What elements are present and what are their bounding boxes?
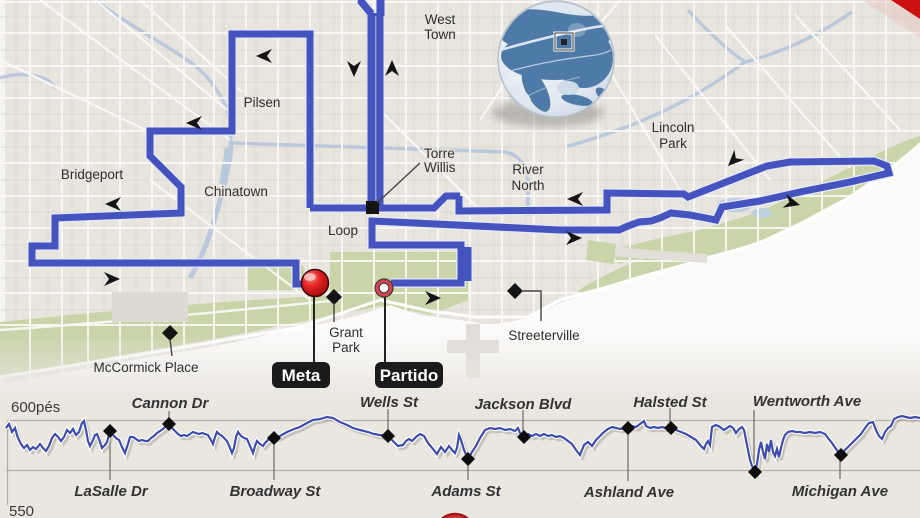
- svg-text:Park: Park: [332, 340, 360, 355]
- svg-text:Michigan Ave: Michigan Ave: [792, 483, 888, 500]
- svg-text:Town: Town: [424, 27, 456, 42]
- svg-text:Adams St: Adams St: [430, 483, 501, 500]
- svg-text:Loop: Loop: [328, 223, 358, 238]
- svg-text:Broadway St: Broadway St: [230, 483, 322, 500]
- svg-text:North: North: [511, 178, 544, 193]
- svg-text:550: 550: [9, 503, 34, 518]
- svg-text:Streeterville: Streeterville: [508, 328, 579, 343]
- svg-text:Cannon Dr: Cannon Dr: [132, 395, 210, 412]
- svg-text:West: West: [425, 12, 456, 27]
- svg-text:Bridgeport: Bridgeport: [61, 167, 124, 182]
- svg-text:Partido: Partido: [380, 366, 439, 385]
- svg-text:Torre: Torre: [424, 146, 455, 161]
- svg-text:Ashland Ave: Ashland Ave: [583, 484, 674, 501]
- svg-text:Jackson Blvd: Jackson Blvd: [475, 396, 573, 413]
- svg-text:LaSalle Dr: LaSalle Dr: [74, 483, 149, 500]
- svg-text:McCormick Place: McCormick Place: [93, 360, 198, 375]
- svg-text:Wentworth Ave: Wentworth Ave: [753, 393, 861, 410]
- svg-text:Willis: Willis: [424, 160, 456, 175]
- svg-text:Wells St: Wells St: [360, 394, 419, 411]
- svg-text:Halsted St: Halsted St: [633, 394, 707, 411]
- svg-text:Park: Park: [659, 136, 687, 151]
- svg-text:Lincoln: Lincoln: [652, 120, 695, 135]
- svg-text:600pés: 600pés: [11, 399, 60, 416]
- svg-text:Pilsen: Pilsen: [244, 95, 281, 110]
- svg-text:River: River: [512, 162, 544, 177]
- svg-text:Chinatown: Chinatown: [204, 184, 268, 199]
- svg-text:Meta: Meta: [282, 366, 321, 385]
- svg-text:Grant: Grant: [329, 325, 363, 340]
